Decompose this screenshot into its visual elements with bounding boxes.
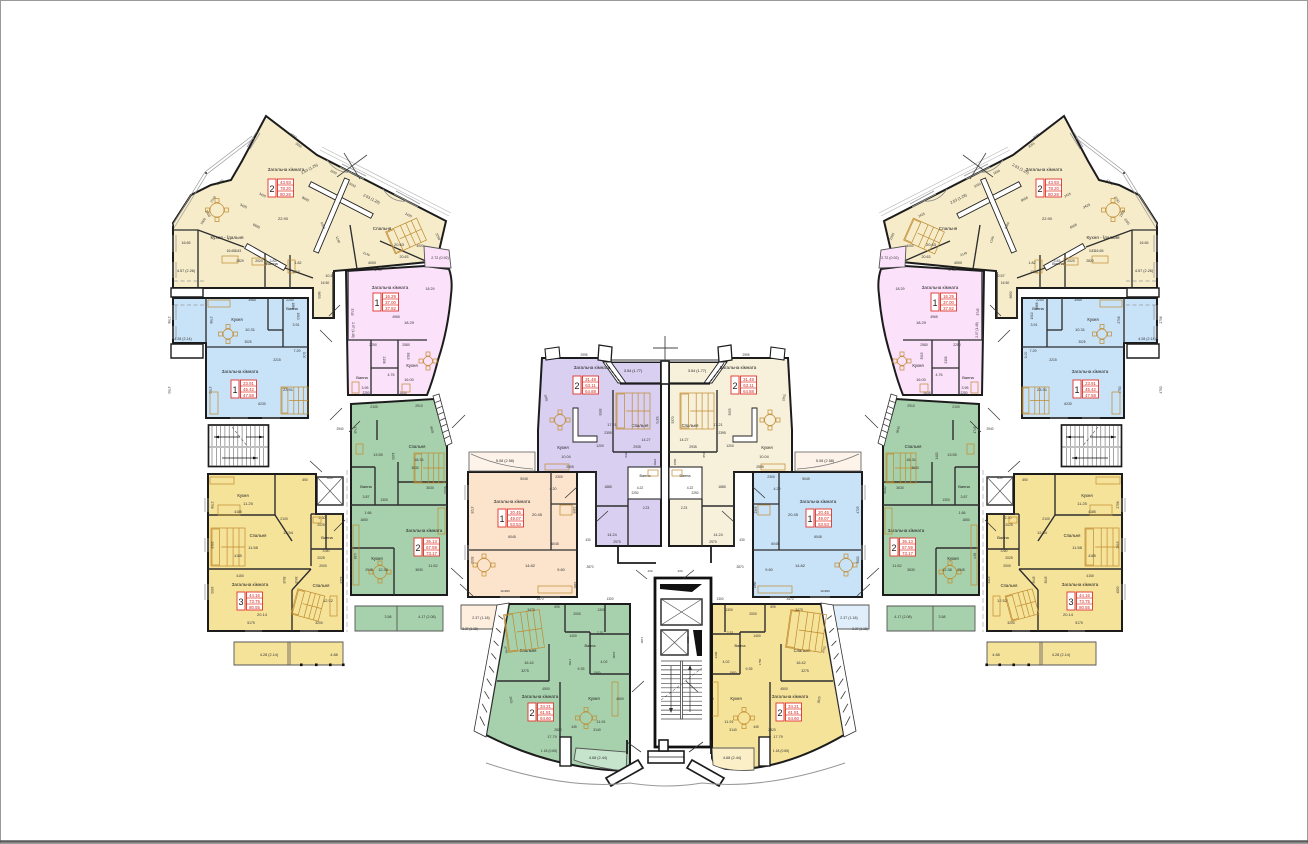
svg-text:2.37 (1.18): 2.37 (1.18) (462, 627, 477, 631)
svg-text:2970: 2970 (709, 540, 717, 544)
svg-text:63.11: 63.11 (743, 383, 754, 388)
svg-text:20.63: 20.63 (922, 255, 931, 259)
svg-text:Загальна кімната: Загальна кімната (222, 369, 259, 374)
svg-text:Ванна: Ванна (958, 484, 970, 489)
svg-text:Спальня: Спальня (313, 583, 330, 588)
svg-text:22.90: 22.90 (278, 216, 289, 221)
svg-text:2870: 2870 (586, 565, 593, 569)
svg-text:3.95: 3.95 (362, 386, 369, 390)
svg-text:3470: 3470 (527, 608, 535, 612)
svg-text:2820: 2820 (554, 728, 562, 732)
svg-text:2995: 2995 (580, 353, 587, 357)
svg-text:53.53: 53.53 (510, 522, 521, 527)
svg-text:23.91: 23.91 (283, 387, 294, 392)
svg-text:3045: 3045 (1044, 576, 1048, 583)
svg-text:20.45: 20.45 (510, 510, 521, 515)
svg-text:4185: 4185 (1088, 554, 1096, 558)
svg-text:445: 445 (571, 725, 577, 729)
svg-text:2025: 2025 (1005, 556, 1013, 560)
svg-text:4500: 4500 (616, 697, 624, 701)
svg-text:6045: 6045 (508, 535, 516, 539)
svg-text:61.81: 61.81 (540, 710, 551, 715)
svg-text:650: 650 (1022, 478, 1028, 482)
svg-text:4965: 4965 (392, 315, 400, 319)
svg-text:4185: 4185 (234, 510, 242, 514)
svg-text:2910: 2910 (907, 404, 915, 408)
svg-text:14.82: 14.82 (795, 563, 806, 568)
svg-text:2100: 2100 (1042, 517, 1050, 521)
svg-text:9.35: 9.35 (578, 667, 585, 671)
svg-text:3.87: 3.87 (363, 495, 370, 499)
svg-text:18.29: 18.29 (404, 320, 415, 325)
svg-text:4.28 (2.14): 4.28 (2.14) (1052, 653, 1071, 657)
svg-text:73.75: 73.75 (249, 599, 260, 604)
svg-text:45.42: 45.42 (243, 387, 254, 392)
svg-text:80.55: 80.55 (249, 605, 260, 610)
svg-text:Загальна кімната: Загальна кімната (800, 499, 837, 504)
svg-text:Кухня: Кухня (371, 556, 382, 561)
svg-text:Загальна кімната: Загальна кімната (574, 365, 611, 370)
svg-text:1750: 1750 (568, 659, 572, 666)
svg-text:16.42: 16.42 (796, 661, 806, 665)
svg-text:Загальна кімната: Загальна кімната (1062, 582, 1099, 587)
svg-text:2.30: 2.30 (1005, 516, 1012, 520)
svg-text:11.25: 11.25 (1077, 501, 1087, 506)
svg-text:20.63: 20.63 (394, 242, 405, 247)
svg-text:111990: 111990 (500, 589, 510, 593)
svg-text:Спальня: Спальня (905, 444, 922, 449)
svg-text:20.45: 20.45 (818, 510, 829, 515)
svg-text:9.35: 9.35 (746, 667, 753, 671)
svg-text:1: 1 (807, 514, 812, 524)
svg-text:3025: 3025 (1078, 340, 1085, 344)
svg-text:Ванна: Ванна (585, 644, 597, 648)
svg-text:10.04: 10.04 (759, 455, 769, 459)
svg-text:11.91: 11.91 (596, 720, 605, 724)
svg-text:20.45: 20.45 (788, 512, 799, 517)
svg-text:1.82: 1.82 (295, 261, 302, 265)
svg-text:4150: 4150 (236, 574, 244, 578)
svg-text:2940: 2940 (986, 427, 993, 431)
svg-text:1310: 1310 (1030, 270, 1038, 274)
svg-text:4.38: 4.38 (973, 553, 977, 559)
svg-text:Кухня: Кухня (406, 363, 417, 368)
svg-text:16.42: 16.42 (524, 661, 534, 665)
svg-text:5370: 5370 (655, 416, 659, 423)
svg-text:1400: 1400 (569, 634, 577, 638)
svg-text:67.59: 67.59 (902, 545, 913, 550)
svg-text:2250: 2250 (631, 491, 638, 495)
svg-text:63.11: 63.11 (585, 383, 596, 388)
svg-text:2910: 2910 (415, 404, 423, 408)
svg-text:4500: 4500 (780, 687, 788, 691)
svg-text:11.58: 11.58 (248, 545, 258, 550)
svg-text:3200: 3200 (315, 621, 323, 625)
svg-text:5045: 5045 (520, 477, 528, 481)
svg-text:2580: 2580 (402, 343, 410, 347)
svg-text:Кухня: Кухня (1087, 317, 1098, 322)
svg-text:2025: 2025 (317, 556, 325, 560)
svg-text:Загальна кімната: Загальна кімната (1072, 369, 1109, 374)
svg-text:73.17: 73.17 (426, 551, 437, 556)
svg-text:3630: 3630 (426, 486, 434, 490)
svg-text:2.97 (1.48): 2.97 (1.48) (351, 322, 355, 337)
svg-text:5.08 (2.58): 5.08 (2.58) (496, 459, 515, 463)
svg-text:2395: 2395 (754, 506, 758, 513)
svg-text:Ванна: Ванна (356, 375, 368, 380)
svg-text:1866: 1866 (1035, 302, 1039, 309)
svg-text:2290: 2290 (612, 652, 616, 659)
svg-text:3.83: 3.83 (235, 249, 241, 253)
svg-text:2870: 2870 (736, 565, 743, 569)
svg-text:14.24: 14.24 (713, 533, 723, 537)
svg-text:13.55: 13.55 (947, 453, 957, 457)
svg-text:2250: 2250 (960, 391, 967, 395)
svg-text:44.16: 44.16 (249, 593, 260, 598)
svg-text:3.83: 3.83 (1054, 259, 1061, 263)
svg-text:20.45: 20.45 (532, 512, 543, 517)
svg-text:3700: 3700 (374, 268, 382, 272)
svg-text:1: 1 (932, 298, 937, 308)
svg-text:1910: 1910 (1030, 312, 1034, 319)
svg-text:2995: 2995 (742, 353, 749, 357)
svg-text:2215: 2215 (273, 358, 281, 362)
svg-text:3985: 3985 (1074, 298, 1082, 302)
svg-text:3470: 3470 (795, 608, 803, 612)
svg-text:695: 695 (770, 605, 776, 609)
svg-text:1200: 1200 (596, 444, 604, 448)
svg-text:7.29: 7.29 (1030, 349, 1037, 353)
svg-text:4185: 4185 (234, 554, 242, 558)
svg-text:2: 2 (269, 184, 274, 194)
svg-text:22.90: 22.90 (1042, 216, 1053, 221)
svg-text:2.32: 2.32 (727, 631, 734, 635)
svg-text:16.50: 16.50 (1001, 281, 1010, 285)
svg-text:3200: 3200 (1007, 621, 1015, 625)
svg-text:2.37 (1.18): 2.37 (1.18) (472, 616, 489, 620)
svg-text:47.58: 47.58 (1085, 393, 1096, 398)
svg-text:9.60: 9.60 (765, 568, 772, 572)
svg-text:3.83: 3.83 (270, 259, 277, 263)
svg-text:3630: 3630 (896, 486, 904, 490)
svg-text:11.25: 11.25 (243, 501, 253, 506)
svg-text:Кухня: Кухня (1081, 493, 1092, 498)
svg-text:2250: 2250 (1036, 298, 1044, 302)
svg-text:2395: 2395 (718, 431, 726, 435)
svg-text:Загальна кімната: Загальна кімната (922, 285, 959, 290)
svg-text:1: 1 (1074, 385, 1079, 395)
svg-text:4215: 4215 (339, 576, 343, 583)
svg-text:4.88: 4.88 (330, 653, 337, 657)
svg-text:3275: 3275 (521, 669, 529, 673)
svg-text:2945: 2945 (365, 568, 373, 572)
svg-text:2000: 2000 (573, 612, 581, 616)
svg-text:4.68 (2.44): 4.68 (2.44) (589, 756, 608, 760)
svg-text:80.26: 80.26 (280, 192, 291, 197)
svg-text:6000: 6000 (443, 486, 447, 493)
svg-text:4215: 4215 (987, 576, 991, 583)
svg-text:5175: 5175 (1075, 621, 1083, 625)
svg-text:2935: 2935 (633, 445, 641, 449)
svg-text:34.21: 34.21 (540, 704, 551, 709)
svg-text:Кухня: Кухня (947, 556, 958, 561)
svg-text:18.29: 18.29 (426, 287, 435, 291)
svg-text:2000: 2000 (1003, 564, 1011, 568)
svg-text:2.37 (1.18): 2.37 (1.18) (840, 616, 857, 620)
svg-text:Кухня: Кухня (730, 696, 741, 701)
svg-text:2940: 2940 (336, 427, 343, 431)
svg-text:650: 650 (327, 476, 333, 480)
svg-text:4000: 4000 (368, 261, 376, 265)
svg-text:11.58: 11.58 (1072, 545, 1082, 550)
svg-text:Ванна: Ванна (321, 535, 333, 540)
svg-text:2820: 2820 (1086, 259, 1094, 263)
svg-text:1850: 1850 (653, 459, 657, 466)
svg-text:23.91: 23.91 (1085, 381, 1096, 386)
svg-text:2935: 2935 (689, 445, 697, 449)
svg-text:4.22: 4.22 (687, 486, 694, 490)
svg-text:4750: 4750 (167, 386, 171, 393)
svg-text:2970: 2970 (613, 540, 621, 544)
svg-text:5045: 5045 (802, 477, 810, 481)
svg-text:1.66: 1.66 (959, 511, 966, 515)
svg-text:12.52: 12.52 (997, 598, 1008, 603)
svg-text:6045: 6045 (551, 542, 559, 546)
svg-text:67.59: 67.59 (426, 545, 437, 550)
svg-text:1.18 (0.65): 1.18 (0.65) (541, 749, 557, 753)
svg-text:445: 445 (753, 725, 759, 729)
svg-text:4050: 4050 (210, 586, 214, 593)
svg-text:2505: 2505 (756, 465, 764, 469)
svg-text:3985: 3985 (248, 298, 256, 302)
svg-text:3.00: 3.00 (1024, 352, 1028, 359)
svg-text:2106: 2106 (382, 356, 386, 363)
svg-text:3945: 3945 (294, 576, 298, 583)
svg-text:850: 850 (702, 452, 706, 457)
svg-text:12.54: 12.54 (1037, 530, 1048, 535)
svg-text:3025: 3025 (244, 340, 251, 344)
svg-text:44.16: 44.16 (1079, 593, 1090, 598)
svg-text:3630: 3630 (415, 568, 423, 572)
svg-text:2250: 2250 (369, 343, 377, 347)
svg-text:2290: 2290 (714, 651, 718, 658)
svg-text:34.21: 34.21 (788, 704, 799, 709)
svg-text:2.72 (0.92): 2.72 (0.92) (431, 256, 448, 260)
svg-text:3745: 3745 (976, 308, 980, 315)
svg-text:2250: 2250 (691, 491, 698, 495)
svg-text:31.48: 31.48 (585, 377, 596, 382)
svg-text:Ванна: Ванна (735, 644, 747, 648)
svg-text:2: 2 (891, 543, 896, 553)
svg-text:4150: 4150 (1086, 574, 1094, 578)
svg-text:4725: 4725 (470, 506, 474, 513)
svg-text:650: 650 (302, 478, 308, 482)
svg-text:18.31: 18.31 (414, 457, 425, 462)
svg-text:1950: 1950 (593, 671, 600, 675)
svg-text:2: 2 (415, 543, 420, 553)
svg-text:Спальня: Спальня (409, 444, 426, 449)
svg-text:6045: 6045 (771, 542, 779, 546)
svg-text:4.22: 4.22 (637, 486, 644, 490)
svg-text:4.76: 4.76 (936, 373, 943, 377)
svg-text:1950: 1950 (573, 582, 577, 589)
svg-text:12.38: 12.38 (378, 568, 388, 572)
svg-text:1300: 1300 (380, 498, 388, 502)
svg-text:61.81: 61.81 (788, 710, 799, 715)
svg-text:3000: 3000 (856, 556, 860, 563)
svg-text:2025: 2025 (317, 523, 325, 527)
svg-text:2.32: 2.32 (597, 631, 604, 635)
svg-text:16.65: 16.65 (1095, 249, 1104, 253)
svg-text:Загальна кімната: Загальна кімната (522, 694, 559, 699)
svg-text:Кухня: Кухня (588, 696, 599, 701)
svg-text:2000: 2000 (749, 612, 757, 616)
svg-text:4.28 (2.14): 4.28 (2.14) (174, 337, 191, 341)
svg-text:Загальна кімната: Загальна кімната (1026, 167, 1063, 172)
svg-text:3630: 3630 (411, 466, 419, 470)
svg-text:3140: 3140 (593, 728, 601, 732)
svg-text:16.65: 16.65 (182, 241, 191, 245)
svg-text:4.88: 4.88 (992, 653, 999, 657)
svg-text:3470: 3470 (786, 597, 793, 601)
svg-text:1200: 1200 (726, 444, 734, 448)
svg-text:16.29: 16.29 (943, 294, 954, 299)
svg-text:2796: 2796 (167, 316, 171, 323)
svg-text:1910: 1910 (296, 312, 300, 319)
svg-text:9650: 9650 (1009, 291, 1013, 298)
svg-text:2915: 2915 (210, 541, 214, 548)
svg-text:2635: 2635 (399, 391, 406, 395)
svg-text:16.65: 16.65 (1140, 241, 1149, 245)
svg-text:5370: 5370 (671, 416, 675, 423)
svg-text:3.91: 3.91 (293, 323, 300, 327)
svg-text:695: 695 (554, 605, 560, 609)
svg-text:73.17: 73.17 (902, 551, 913, 556)
svg-text:2.72 (0.92): 2.72 (0.92) (881, 256, 898, 260)
svg-text:2250: 2250 (286, 298, 294, 302)
svg-text:2395: 2395 (572, 506, 576, 513)
svg-text:Загальна кімната: Загальна кімната (888, 528, 925, 533)
svg-text:37.00: 37.00 (385, 300, 396, 305)
svg-text:2.37 (1.18): 2.37 (1.18) (852, 627, 867, 631)
svg-text:18.29: 18.29 (896, 287, 905, 291)
svg-text:Загальна кімната: Загальна кімната (720, 365, 757, 370)
svg-text:18.31: 18.31 (906, 457, 917, 462)
svg-text:1: 1 (374, 298, 379, 308)
svg-text:10.31: 10.31 (245, 327, 256, 332)
svg-text:1.82: 1.82 (1029, 261, 1036, 265)
svg-text:2215: 2215 (1049, 358, 1057, 362)
svg-text:1650: 1650 (962, 518, 970, 522)
svg-text:2820: 2820 (236, 259, 244, 263)
svg-text:3.87: 3.87 (961, 495, 968, 499)
svg-text:4.38: 4.38 (353, 553, 357, 559)
svg-text:3.60: 3.60 (323, 549, 330, 553)
svg-text:4.68 (2.44): 4.68 (2.44) (723, 756, 742, 760)
svg-text:2756: 2756 (1116, 501, 1120, 508)
svg-text:18.29: 18.29 (916, 320, 927, 325)
svg-text:2300: 2300 (767, 475, 775, 479)
svg-text:3470: 3470 (536, 597, 543, 601)
svg-text:1310: 1310 (292, 270, 300, 274)
svg-text:10.31: 10.31 (1075, 327, 1086, 332)
svg-text:3: 3 (238, 597, 243, 607)
svg-text:Ванна: Ванна (997, 535, 1009, 540)
svg-text:2796: 2796 (1159, 316, 1163, 323)
svg-text:3915: 3915 (920, 352, 924, 359)
svg-text:6045: 6045 (814, 535, 822, 539)
svg-text:Кухня: Кухня (912, 363, 923, 368)
svg-text:1650: 1650 (360, 518, 368, 522)
svg-text:2915: 2915 (1116, 541, 1120, 548)
svg-text:80.26: 80.26 (1048, 192, 1059, 197)
svg-text:Кухня: Кухня (237, 493, 248, 498)
svg-text:1850: 1850 (673, 458, 677, 465)
svg-text:3140: 3140 (729, 728, 737, 732)
svg-text:1885: 1885 (604, 485, 612, 489)
svg-text:80.55: 80.55 (1079, 605, 1090, 610)
svg-text:4000: 4000 (954, 261, 962, 265)
svg-text:12.54: 12.54 (283, 530, 294, 535)
svg-text:1300: 1300 (640, 637, 644, 644)
svg-text:3.54 (1.77): 3.54 (1.77) (624, 369, 643, 373)
svg-text:3630: 3630 (911, 466, 919, 470)
svg-text:2: 2 (777, 708, 782, 718)
svg-text:16.29: 16.29 (385, 294, 396, 299)
svg-text:6230: 6230 (1064, 402, 1072, 406)
svg-text:23.91: 23.91 (243, 381, 254, 386)
svg-text:3: 3 (1068, 597, 1073, 607)
svg-text:9.60: 9.60 (557, 568, 564, 572)
svg-text:6230: 6230 (258, 402, 266, 406)
svg-text:20.63: 20.63 (400, 255, 409, 259)
svg-text:20.14: 20.14 (1063, 612, 1074, 617)
svg-text:3045: 3045 (282, 576, 286, 583)
svg-text:430: 430 (739, 538, 745, 542)
svg-text:4.28 (2.14): 4.28 (2.14) (260, 653, 279, 657)
svg-text:Спальня: Спальня (250, 533, 267, 538)
svg-text:5175: 5175 (247, 621, 255, 625)
svg-text:2395: 2395 (604, 431, 612, 435)
svg-text:16.00: 16.00 (916, 378, 926, 382)
svg-text:36.13: 36.13 (902, 539, 913, 544)
svg-text:10.57: 10.57 (325, 274, 335, 278)
svg-text:3955: 3955 (728, 408, 732, 415)
svg-text:3.91: 3.91 (1031, 323, 1038, 327)
svg-text:3955: 3955 (598, 408, 602, 415)
svg-text:Ванна: Ванна (962, 375, 974, 380)
svg-text:53.53: 53.53 (818, 522, 829, 527)
svg-text:Кухня: Кухня (761, 445, 772, 450)
svg-text:4.76: 4.76 (388, 373, 395, 377)
svg-text:1300: 1300 (725, 608, 733, 612)
svg-text:430: 430 (677, 569, 682, 573)
svg-text:3.58: 3.58 (385, 615, 392, 619)
svg-text:3630: 3630 (907, 568, 915, 572)
svg-text:Ванна: Ванна (360, 484, 372, 489)
svg-text:1885: 1885 (718, 485, 726, 489)
svg-text:64.88: 64.88 (585, 389, 596, 394)
svg-text:14.27: 14.27 (642, 438, 651, 442)
svg-text:1400: 1400 (935, 452, 939, 459)
svg-text:Кухня: Кухня (231, 317, 242, 322)
svg-text:78.20: 78.20 (280, 186, 291, 191)
svg-text:2: 2 (1037, 184, 1042, 194)
svg-text:9650: 9650 (317, 291, 321, 298)
svg-text:2020: 2020 (1067, 259, 1075, 263)
svg-text:2300: 2300 (555, 475, 563, 479)
svg-text:Загальна кімната: Загальна кімната (772, 694, 809, 699)
